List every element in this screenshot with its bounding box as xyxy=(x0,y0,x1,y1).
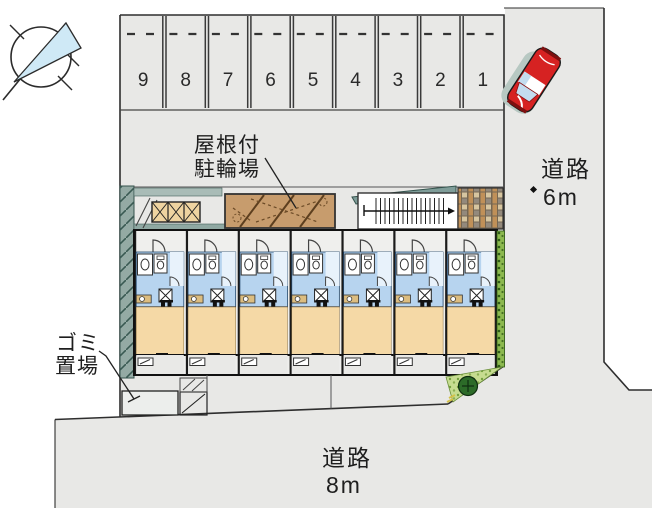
north-arrow-icon xyxy=(3,23,81,100)
parking-space-number: 9 xyxy=(138,70,149,91)
parking-space-number: 1 xyxy=(478,70,489,91)
parking-space-number: 4 xyxy=(350,70,361,91)
apartment-unit xyxy=(238,230,290,375)
building xyxy=(134,230,497,375)
apartment-unit xyxy=(445,230,497,375)
parking-space-number: 6 xyxy=(265,70,276,91)
stairs xyxy=(358,193,458,229)
garbage-label-line1: ゴミ xyxy=(56,332,100,355)
garbage-label-line2: 置場 xyxy=(55,355,99,378)
road-east-label-line2: 6m xyxy=(543,184,579,210)
brick-pavement xyxy=(458,188,503,229)
parking-space-number: 2 xyxy=(435,70,446,91)
canopy-edge-strip xyxy=(134,188,222,196)
side-wall-strip xyxy=(120,186,134,378)
bush-icon xyxy=(459,377,478,396)
covered-bicycle-parking-area xyxy=(225,194,335,228)
apartment-unit xyxy=(290,230,342,375)
hedge-strip xyxy=(497,231,505,367)
bike-shed-label-line1: 屋根付 xyxy=(194,134,260,157)
apartment-unit xyxy=(393,230,445,375)
parking-space-number: 5 xyxy=(308,70,319,91)
road-south-label-line2: 8m xyxy=(326,472,362,498)
parking-space-number: 8 xyxy=(180,70,191,91)
apartment-unit xyxy=(186,230,238,375)
apartment-unit xyxy=(341,230,393,375)
road-south-label-line1: 道路 xyxy=(322,445,372,471)
bike-shed-label-line2: 駐輪場 xyxy=(194,158,260,181)
parking-space-numbers: 9 8 7 6 5 4 3 2 1 xyxy=(138,70,488,91)
apartment-unit xyxy=(134,230,186,375)
site-plan: 9 8 7 6 5 4 3 2 1 xyxy=(0,0,652,508)
road-east-label-line1: 道路 xyxy=(541,156,591,182)
parking-space-number: 3 xyxy=(393,70,404,91)
parking-space-number: 7 xyxy=(223,70,234,91)
storage-boxes xyxy=(152,202,200,222)
